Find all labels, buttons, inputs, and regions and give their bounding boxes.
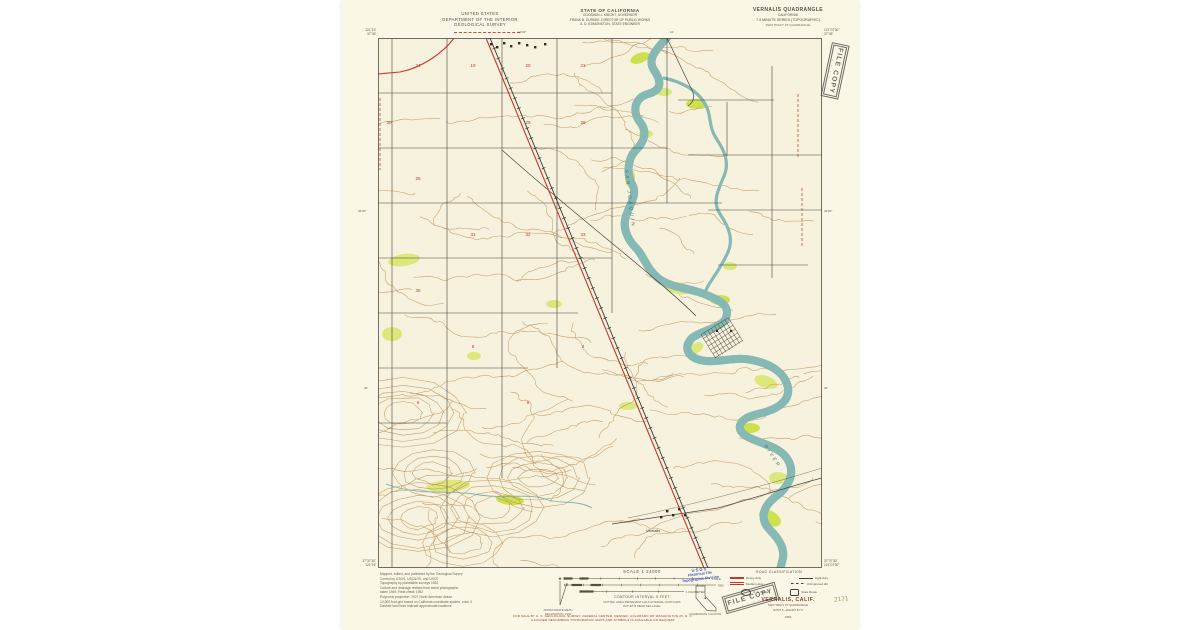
edge-tick-right: 42'30" — [824, 209, 832, 213]
section-number: 30 — [386, 120, 392, 125]
header-quadrangle: VERNALIS QUADRANGLE CALIFORNIA 7.5 MINUT… — [712, 7, 864, 27]
state-route-shield-icon — [790, 589, 799, 596]
edge-tick-left: 42'30" — [358, 209, 366, 213]
header-state-line: A. D. EDMONSTON, STATE ENGINEER — [530, 22, 690, 27]
section-number: 28 — [580, 120, 586, 125]
section-number: 24 — [415, 63, 421, 68]
route-dash-marks — [454, 32, 520, 33]
california-outline-icon — [694, 585, 718, 612]
screenshot-root: UNITED STATES DEPARTMENT OF THE INTERIOR… — [0, 0, 1200, 630]
edge-tick-top: 10' — [670, 30, 674, 34]
heavy-duty-road-swatch — [730, 577, 744, 579]
quad-location-marker — [705, 598, 707, 600]
section-number: 29 — [525, 120, 531, 125]
svg-text:7000 FEET: 7000 FEET — [718, 584, 725, 588]
medium-duty-road-swatch — [730, 582, 744, 585]
edge-tick-right: 40' — [824, 386, 828, 390]
section-number: 25 — [415, 176, 421, 181]
file-copy-stamp-top-right: * * * * FILE COPY * * * * — [821, 42, 849, 99]
section-number: 31 — [470, 232, 476, 237]
pencil-accession-number: 2171 — [834, 595, 849, 603]
map-sheet: UNITED STATES DEPARTMENT OF THE INTERIOR… — [342, 0, 858, 630]
sheet-year: 1952 — [740, 615, 836, 619]
edge-tick-left: 40' — [364, 386, 368, 390]
sale-note: FOR SALE BY U. S. GEOLOGICAL SURVEY, FED… — [488, 614, 718, 623]
corner-top-right: 121°07'30" 37°45' — [824, 28, 858, 37]
corner-bottom-right: 37°37'30" 121°07'30" — [824, 559, 858, 568]
road-classification-title: ROAD CLASSIFICATION — [730, 570, 828, 574]
section-number: 21 — [580, 63, 586, 68]
topographic-map: 2419202130292825313233365468 SAN JOAQUIN… — [378, 38, 822, 568]
town-label: Vernalis — [646, 528, 660, 533]
quad-parent: SW/4 TRACY 15' QUADRANGLE — [712, 23, 864, 27]
edge-tick-top: 12'30" — [518, 30, 526, 34]
header-state: STATE OF CALIFORNIA GOODWIN J. KNIGHT, G… — [530, 8, 690, 27]
section-number: 20 — [525, 63, 531, 68]
section-number: 32 — [525, 232, 531, 237]
section-number: 33 — [580, 232, 586, 237]
light-duty-road-swatch — [799, 578, 813, 579]
corner-bottom-left: 37°37'30" 121°15' — [342, 559, 376, 568]
corner-top-left: 121°15' 37°45' — [342, 28, 376, 37]
unimproved-road-swatch — [791, 583, 805, 584]
section-number: 19 — [470, 63, 476, 68]
section-number: 36 — [415, 288, 421, 293]
